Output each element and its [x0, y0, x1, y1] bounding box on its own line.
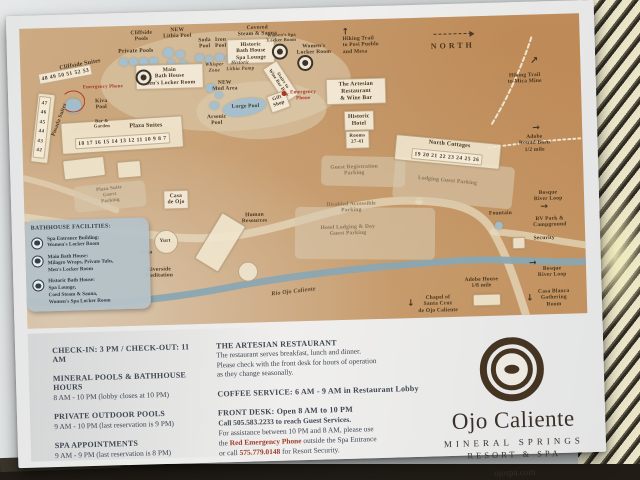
- historic-lithia-pump-label: Historic Lithia Pump: [226, 60, 255, 73]
- restaurant-body: The restaurant serves breakfast, lunch a…: [216, 345, 425, 380]
- casa-blanca-arrow: ↓: [526, 293, 534, 304]
- emergency-phone-kiva-label: Emergency Phone: [83, 84, 123, 91]
- new-lithia-pool-label: NEW Lithia Pool: [163, 27, 192, 41]
- legend-item-text: Spa Entrance Building: Women's Locker Ro…: [47, 234, 100, 249]
- soda-pool-label: Soda Pool: [198, 37, 211, 50]
- legend-items: Spa Entrance Building: Women's Locker Ro…: [31, 233, 145, 306]
- bathhouse-legend: BATHHOUSE FACILITIES: Spa Entrance Build…: [25, 217, 151, 312]
- hours-heading: CHECK-IN: 3 PM / CHECK-OUT: 11 AM: [52, 342, 202, 364]
- brand-subtitle-2: RESORT & SPA: [441, 447, 587, 461]
- adobe-round-barn-label: Adobe Round Barn 1/2 mile: [519, 133, 551, 153]
- legend-item-text: Historic Bath House: Spa Lounge, Coed St…: [48, 277, 110, 306]
- coffee-service: COFFEE SERVICE: 6 AM - 9 AM in Restauran…: [217, 384, 425, 399]
- pool-shape-8: [194, 54, 203, 62]
- facility-target-icon: [32, 280, 44, 292]
- bosque-arrow-2: →: [529, 258, 537, 269]
- large-pool-label: Large Pool: [231, 103, 259, 110]
- iron-pool-label: Iron Pool: [215, 37, 227, 50]
- facility-target-icon: [31, 255, 43, 267]
- hiking-trail-posi-arrow: ↑: [341, 27, 349, 38]
- cliffside-pools-label: Cliffside Pools: [130, 30, 152, 44]
- yurt-label: Yurt: [160, 238, 171, 244]
- arsenic-pool-label: Arsenic Pool: [207, 114, 227, 128]
- hiking-trail-mica-arrow: ↗: [530, 56, 539, 68]
- plaza-suite-parking-label: Plaza Suite Guest Parking: [96, 185, 124, 206]
- hours-item-3: SPA APPOINTMENTS9 AM - 9 PM (last reserv…: [55, 437, 205, 460]
- hiking-trail-posi-label: Hiking Trail to Posi Pueblo and Mesa: [342, 35, 379, 55]
- pool-shape-4: [162, 48, 173, 58]
- pool-shape-5: [175, 50, 184, 58]
- adobe-round-barn-arrow: →: [532, 123, 540, 134]
- artesian-restaurant-box: The Artesian Restaurant & Wine Bar: [326, 77, 387, 105]
- hours-column: CHECK-IN: 3 PM / CHECK-OUT: 11 AMMINERAL…: [52, 342, 205, 461]
- human-resources-label: Human Resources: [242, 212, 268, 226]
- info-panel: CHECK-IN: 3 PM / CHECK-OUT: 11 AMMINERAL…: [28, 318, 593, 462]
- disabled-parking-label: Disabled Accessible Parking: [326, 201, 376, 215]
- legend-title: BATHHOUSE FACILITIES:: [31, 223, 143, 232]
- new-mud-area-label: NEW Mud Area: [212, 79, 238, 93]
- chapel-arrow: ↓: [407, 299, 415, 310]
- plaza-suites-label: Plaza Suites: [129, 122, 162, 130]
- ojo-caliente-logo-icon: [479, 336, 545, 402]
- historic-hotel-box: Historic Hotel: [344, 110, 374, 130]
- hours-item-0: CHECK-IN: 3 PM / CHECK-OUT: 11 AM: [52, 342, 202, 364]
- facility-target-icon: [31, 237, 43, 249]
- whisper-zone-label: Whisper Zone: [205, 62, 224, 74]
- fountain-label: Fountain: [489, 210, 512, 217]
- resort-map: Cliffside Suites48 49 50 51 52 53Private…: [19, 13, 587, 329]
- womens-spa-locker-label: Women's Spa Locker Room: [267, 32, 296, 44]
- casa-de-ojo-box: Casa de Ojo: [163, 190, 188, 210]
- emergency-phone-dot-spa: [282, 91, 287, 96]
- adobe-house-label: Adobe House 1/8 mile: [464, 276, 498, 290]
- security-phone-number: 575.779.0148: [239, 447, 280, 457]
- map-structure-13: [512, 237, 525, 249]
- bosque-river-loop-label-2: Bosque River Loop: [535, 265, 569, 279]
- rv-park-label: RV Park & Campground: [533, 215, 567, 229]
- resort-map-paper: Cliffside Suites48 49 50 51 52 53Private…: [6, 0, 606, 468]
- north-label: NORTH: [431, 40, 475, 51]
- legend-item-0: Spa Entrance Building: Women's Locker Ro…: [31, 233, 143, 250]
- private-pools-label: Private Pools: [118, 48, 153, 56]
- pool-shape-9: [205, 55, 213, 62]
- services-column: THE ARTESIAN RESTAURANT The restaurant s…: [216, 336, 427, 457]
- bar-garden-label: Bar & Garden: [94, 118, 111, 129]
- legend-item-text: Main Bath House: Milagro Wraps, Private …: [47, 252, 113, 274]
- hotel-rooms-box: Rooms 27-41: [345, 130, 369, 148]
- kiva-pool-label: Kiva Pool: [95, 98, 107, 111]
- legend-item-1: Main Bath House: Milagro Wraps, Private …: [31, 251, 144, 274]
- emergency-phone-spa-label: Emergency Phone: [290, 90, 316, 103]
- hiking-trail-mica-label: Hiking Trail to Mica Mine: [508, 72, 542, 86]
- photo-background: Cliffside Suites48 49 50 51 52 53Private…: [0, 0, 640, 480]
- security-label: Security: [534, 235, 555, 242]
- map-structure-12: [473, 294, 501, 307]
- casa-blanca-label: Casa Blanca Gathering Room: [538, 288, 570, 308]
- hours-item-2: PRIVATE OUTDOOR POOLS9 AM - 10 PM (last …: [54, 408, 204, 431]
- legend-item-2: Historic Bath House: Spa Lounge, Coed St…: [32, 276, 145, 306]
- map-structure-15: [116, 159, 141, 178]
- hotel-lodging-parking-label: Hotel Lodging & Day Guest Parking: [321, 224, 376, 238]
- brand-name: Ojo Caliente: [440, 405, 587, 435]
- hours-item-1: MINERAL POOLS & BATHHOUSE HOURS8 AM - 10…: [53, 370, 204, 402]
- chapel-label: Chapel of Santa Cruz de Ojo Caliente: [418, 294, 458, 315]
- bosque-arrow-1: →: [540, 202, 548, 213]
- pool-shape-10: [214, 53, 223, 61]
- guest-registration-parking-label: Guest Registration Parking: [330, 163, 378, 177]
- brand-column: Ojo Caliente MINERAL SPRINGS RESORT & SP…: [438, 331, 587, 450]
- pool-shape-0: [119, 58, 128, 66]
